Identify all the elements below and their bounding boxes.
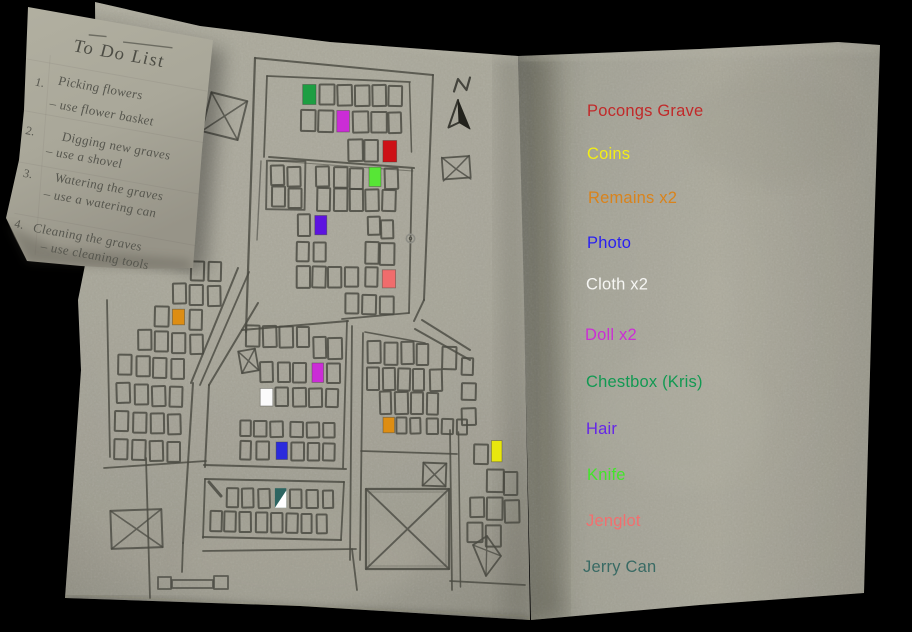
svg-text:Knife: Knife bbox=[587, 466, 626, 484]
svg-text:Jerry Can: Jerry Can bbox=[583, 558, 656, 576]
svg-text:Remains x2: Remains x2 bbox=[588, 189, 677, 207]
svg-text:Chestbox (Kris): Chestbox (Kris) bbox=[586, 373, 703, 391]
svg-text:Doll x2: Doll x2 bbox=[585, 326, 637, 344]
svg-text:4.: 4. bbox=[14, 216, 24, 231]
svg-text:Pocongs Grave: Pocongs Grave bbox=[587, 102, 703, 120]
svg-text:2.: 2. bbox=[25, 123, 35, 138]
svg-text:Photo: Photo bbox=[587, 234, 631, 252]
svg-text:Cloth x2: Cloth x2 bbox=[586, 276, 648, 294]
svg-text:1.: 1. bbox=[35, 75, 45, 90]
svg-text:Jenglot: Jenglot bbox=[586, 512, 641, 530]
svg-text:Hair: Hair bbox=[586, 420, 617, 438]
svg-text:Coins: Coins bbox=[587, 145, 630, 163]
svg-text:3.: 3. bbox=[22, 166, 33, 182]
